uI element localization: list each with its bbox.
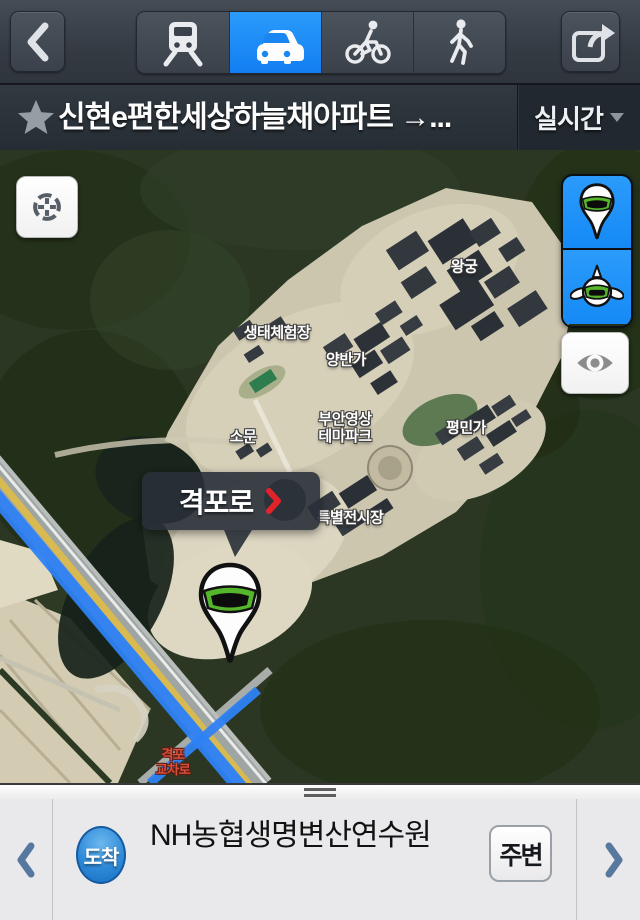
transport-mode-switcher: [136, 11, 506, 74]
navigation-app: 신현e편한세상하늘채아파트 →... 실시간: [0, 0, 640, 920]
grip-line: [304, 788, 336, 791]
mode-walk-button[interactable]: [413, 12, 505, 73]
road-tooltip-label: 격포로: [179, 481, 253, 521]
map-viewport[interactable]: 왕궁 생태체험장 양반가 소문 부안영상 테마파크 평민가 특별전시장 격포 교…: [0, 150, 640, 783]
divider: [52, 799, 53, 920]
satellite-terrain: [0, 150, 640, 783]
chevron-right-icon: [602, 841, 626, 879]
roadview-flying-pin-icon: [570, 261, 624, 313]
map-label: 부안영상 테마파크: [318, 411, 371, 445]
caret-down-icon: [610, 113, 624, 122]
eye-icon: [571, 343, 619, 383]
chevron-left-icon: [18, 18, 58, 66]
locate-button[interactable]: [16, 176, 78, 238]
realtime-label: 실시간: [534, 99, 603, 136]
map-label: 양반가: [326, 352, 366, 369]
roadview-pin-icon: [578, 183, 616, 241]
divider: [576, 799, 577, 920]
prev-step-button[interactable]: [3, 799, 49, 920]
map-label-interchange: 격포 교차로: [156, 747, 190, 777]
share-button[interactable]: [561, 11, 620, 72]
next-step-button[interactable]: [591, 799, 637, 920]
top-toolbar: [0, 0, 640, 85]
route-summary-bar: 신현e편한세상하늘채아파트 →... 실시간: [0, 85, 640, 150]
train-icon: [155, 15, 211, 71]
tooltip-tail: [224, 530, 252, 557]
share-export-icon: [563, 14, 619, 70]
road-tooltip[interactable]: 격포로: [142, 472, 320, 530]
visibility-button[interactable]: [561, 332, 629, 394]
bicycle-icon: [340, 15, 396, 71]
drag-handle[interactable]: [0, 783, 640, 799]
mode-car-button[interactable]: [229, 12, 321, 73]
destination-title: NH농협생명변산연수원: [150, 819, 468, 853]
mode-transit-button[interactable]: [137, 12, 229, 73]
chevron-left-icon: [14, 841, 38, 879]
map-marker-controls: [561, 174, 633, 328]
roadview-pin-marker[interactable]: [197, 562, 263, 666]
roadview-pin-button[interactable]: [563, 176, 631, 250]
realtime-dropdown[interactable]: 실시간: [517, 85, 640, 150]
back-button[interactable]: [10, 11, 65, 72]
map-label: 생태체험장: [244, 325, 311, 342]
pedestrian-icon: [432, 15, 488, 71]
map-label: 평민가: [446, 420, 486, 437]
roadview-flying-button[interactable]: [563, 250, 631, 324]
grip-line: [304, 794, 336, 797]
nearby-button[interactable]: 주변: [489, 825, 552, 882]
arrival-badge: 도착: [76, 826, 126, 884]
car-icon: [248, 15, 304, 71]
map-label: 왕궁: [451, 259, 478, 276]
map-label: 소문: [230, 429, 257, 446]
route-title: 신현e편한세상하늘채아파트 →...: [58, 85, 451, 150]
map-label: 특별전시장: [317, 510, 384, 527]
chevron-right-red-icon: [265, 488, 283, 514]
mode-bicycle-button[interactable]: [321, 12, 413, 73]
crosshair-target-icon: [24, 184, 70, 230]
star-icon[interactable]: [16, 98, 56, 138]
destination-bar: 도착 NH농협생명변산연수원 주변: [0, 799, 640, 920]
